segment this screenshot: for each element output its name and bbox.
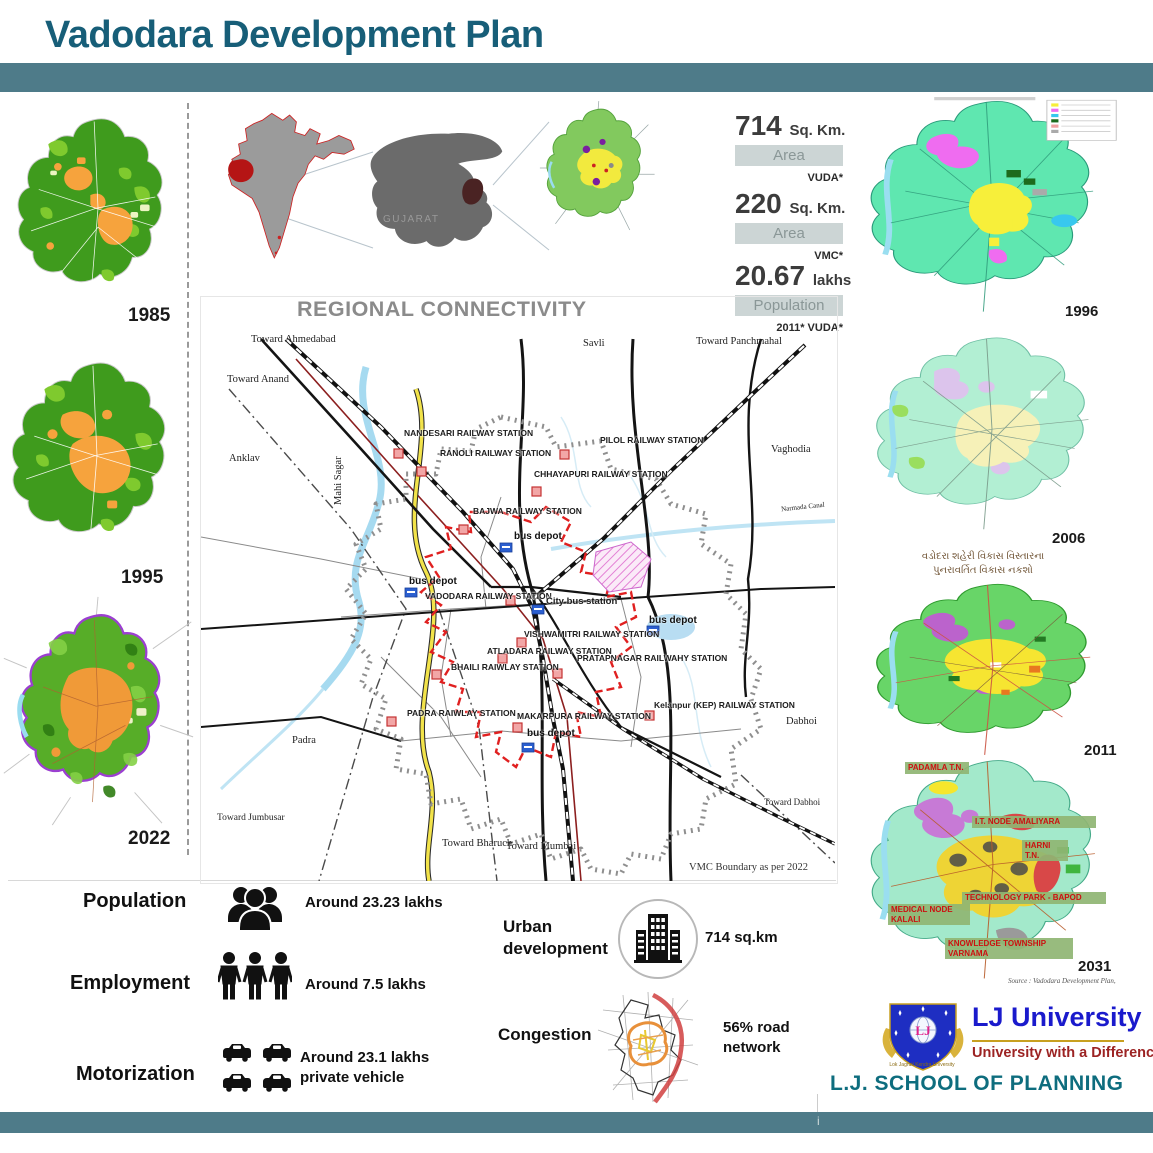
station-label-pilol: PILOL RAILWAY STATION	[600, 435, 703, 445]
stat-source: VUDA*	[735, 172, 843, 184]
plan-label-medical-node: MEDICAL NODE KALALI	[888, 904, 970, 925]
place-label-bharuch: Toward Bharuch	[442, 838, 512, 849]
stat-category: Area	[735, 145, 843, 166]
slide: Vadodara Development Plan i	[0, 0, 1153, 1153]
place-label-mumbai: Toward Mumbai	[506, 841, 576, 852]
bus-depot-label: bus depot	[527, 728, 575, 739]
city-bus-station-label: City bus station	[546, 596, 617, 607]
university-underline	[972, 1040, 1124, 1042]
stat-vuda-area: 714 Sq. Km. Area VUDA*	[735, 110, 845, 184]
station-label-vadodara: VADODARA RAILWAY STATION	[425, 591, 552, 601]
map-caption-gujarati-line1: વડોદરા શહેરી વિકાસ વિસ્તારના	[893, 551, 1073, 562]
urban-development-value: 714 sq.km	[705, 928, 778, 948]
gujarat-label: GUJARAT	[383, 214, 439, 225]
university-name: LJ University	[972, 1002, 1142, 1033]
india-map	[228, 113, 354, 258]
station-label-padra: PADRA RAIWLAY STATION	[407, 708, 516, 718]
place-label-panchmahal: Toward Panchmahal	[696, 336, 782, 347]
stat-unit: Sq. Km.	[790, 122, 846, 139]
bottom-accent-bar	[0, 1112, 1153, 1133]
station-label-kelanpur: Kelanpur (KEP) RAILWAY STATION	[654, 700, 795, 710]
indicator-label-employment: Employment	[70, 972, 190, 995]
year-label-2006: 2006	[1052, 530, 1085, 547]
landuse-map-1985	[12, 114, 184, 312]
station-label-bhaili: BHAILI RAIWLAY STATION	[451, 662, 559, 672]
year-label-1996: 1996	[1065, 303, 1098, 320]
school-name: L.J. SCHOOL OF PLANNING	[830, 1072, 1123, 1096]
stat-value: 20.67	[735, 260, 805, 291]
map-source-note: Source : Vadodara Development Plan,	[1008, 977, 1116, 985]
congestion-label: Congestion	[498, 1024, 592, 1046]
place-label-vaghodia: Vaghodia	[771, 444, 811, 455]
stat-value: 220	[735, 188, 782, 219]
shield-initials: LJ	[915, 1023, 931, 1038]
indicator-value-motorization: Around 23.1 lakhs private vehicle	[300, 1048, 452, 1087]
bus-depot-label: bus depot	[514, 531, 562, 542]
indicator-label-population: Population	[83, 890, 186, 913]
year-label-1985: 1985	[128, 305, 170, 327]
stat-unit: lakhs	[813, 272, 851, 289]
map-caption-gujarati-line2: પુનરાવર્તિત વિકાસ નકશો	[893, 565, 1073, 576]
year-label-2022: 2022	[128, 828, 170, 850]
logo-ribbon-text: Lok Jagruti Kendra University	[872, 1062, 972, 1068]
page-marker: i	[817, 1114, 820, 1128]
plan-label-it-node: I.T. NODE AMALIYARA	[972, 816, 1096, 828]
footer-divider-line	[817, 1094, 818, 1112]
landuse-map-2022	[2, 596, 194, 826]
plan-label-technology-park: TECHNOLOGY PARK - BAPOD	[962, 892, 1106, 904]
page-title: Vadodara Development Plan	[45, 14, 544, 57]
bus-depot-label: bus depot	[409, 576, 457, 587]
year-label-2031: 2031	[1078, 958, 1111, 975]
gujarat-map	[371, 133, 503, 247]
indicator-value-employment: Around 7.5 lakhs	[305, 975, 426, 995]
place-label-savli: Savli	[583, 338, 605, 349]
development-plan-map-1996	[862, 96, 1122, 318]
station-label-makarpura: MAKARPURA RAILWAY STATION	[517, 711, 651, 721]
plan-label-knowledge-township: KNOWLEDGE TOWNSHIP VARNAMA	[945, 938, 1073, 959]
workers-icon	[218, 952, 292, 1010]
stat-unit: Sq. Km.	[790, 200, 846, 217]
plan-label-padamla: PADAMLA T.N.	[905, 762, 969, 774]
congestion-value: 56% road network	[723, 1018, 815, 1057]
landuse-map-1995	[6, 358, 188, 563]
station-label-nandesari: NANDESARI RAILWAY STATION	[404, 428, 533, 438]
university-tagline: University with a Difference	[972, 1045, 1153, 1061]
locator-maps: GUJARAT	[205, 100, 695, 295]
vuda-landuse-thumb	[540, 101, 655, 230]
station-label-chhayapuri: CHHAYAPURI RAILWAY STATION	[534, 469, 668, 479]
vmc-boundary-note: VMC Boundary as per 2022	[689, 862, 808, 873]
stat-vmc-area: 220 Sq. Km. Area VMC*	[735, 188, 845, 262]
plan-label-harni: HARNI T.N.	[1022, 840, 1068, 861]
place-label-padra: Padra	[292, 735, 316, 746]
place-label-dabhoi: Dabhoi	[786, 716, 817, 727]
place-label-mahisagar: Mahi Sagar	[333, 456, 344, 505]
people-group-icon	[226, 882, 284, 932]
indicator-value-population: Around 23.23 lakhs	[305, 893, 443, 913]
indicator-label-motorization: Motorization	[76, 1063, 195, 1086]
place-label-anand: Toward Anand	[227, 374, 289, 385]
station-label-ranoli: RANOLI RAILWAY STATION	[440, 448, 551, 458]
station-label-vishwamitri: VISHWAMITRI RAILWAY STATION	[524, 629, 659, 639]
bus-depot-label: bus depot	[649, 615, 697, 626]
place-label-toward-dabhoi: Toward Dabhoi	[764, 797, 820, 807]
place-label-anklav: Anklav	[229, 453, 260, 464]
year-label-1995: 1995	[121, 567, 163, 589]
congestion-map-thumb	[593, 990, 705, 1108]
stat-category: Area	[735, 223, 843, 244]
development-plan-map-2006	[868, 333, 1116, 535]
station-label-bajwa: BAJWA RAILWAY STATION	[473, 506, 582, 516]
place-label-jumbusar: Toward Jumbusar	[217, 813, 285, 823]
urban-development-label: Urban development	[503, 916, 618, 960]
station-label-pratapnagar: PRATAPNAGAR RAILWAHY STATION	[577, 653, 727, 663]
place-label-ahmedabad: Toward Ahmedabad	[251, 334, 336, 345]
regional-map-canvas	[201, 297, 835, 881]
stat-value: 714	[735, 110, 782, 141]
building-icon	[617, 898, 699, 980]
regional-connectivity-map: REGIONAL CONNECTIVITY	[200, 296, 838, 884]
cars-icon	[220, 1042, 296, 1100]
top-accent-bar	[0, 63, 1153, 92]
development-plan-map-2011	[868, 580, 1118, 760]
